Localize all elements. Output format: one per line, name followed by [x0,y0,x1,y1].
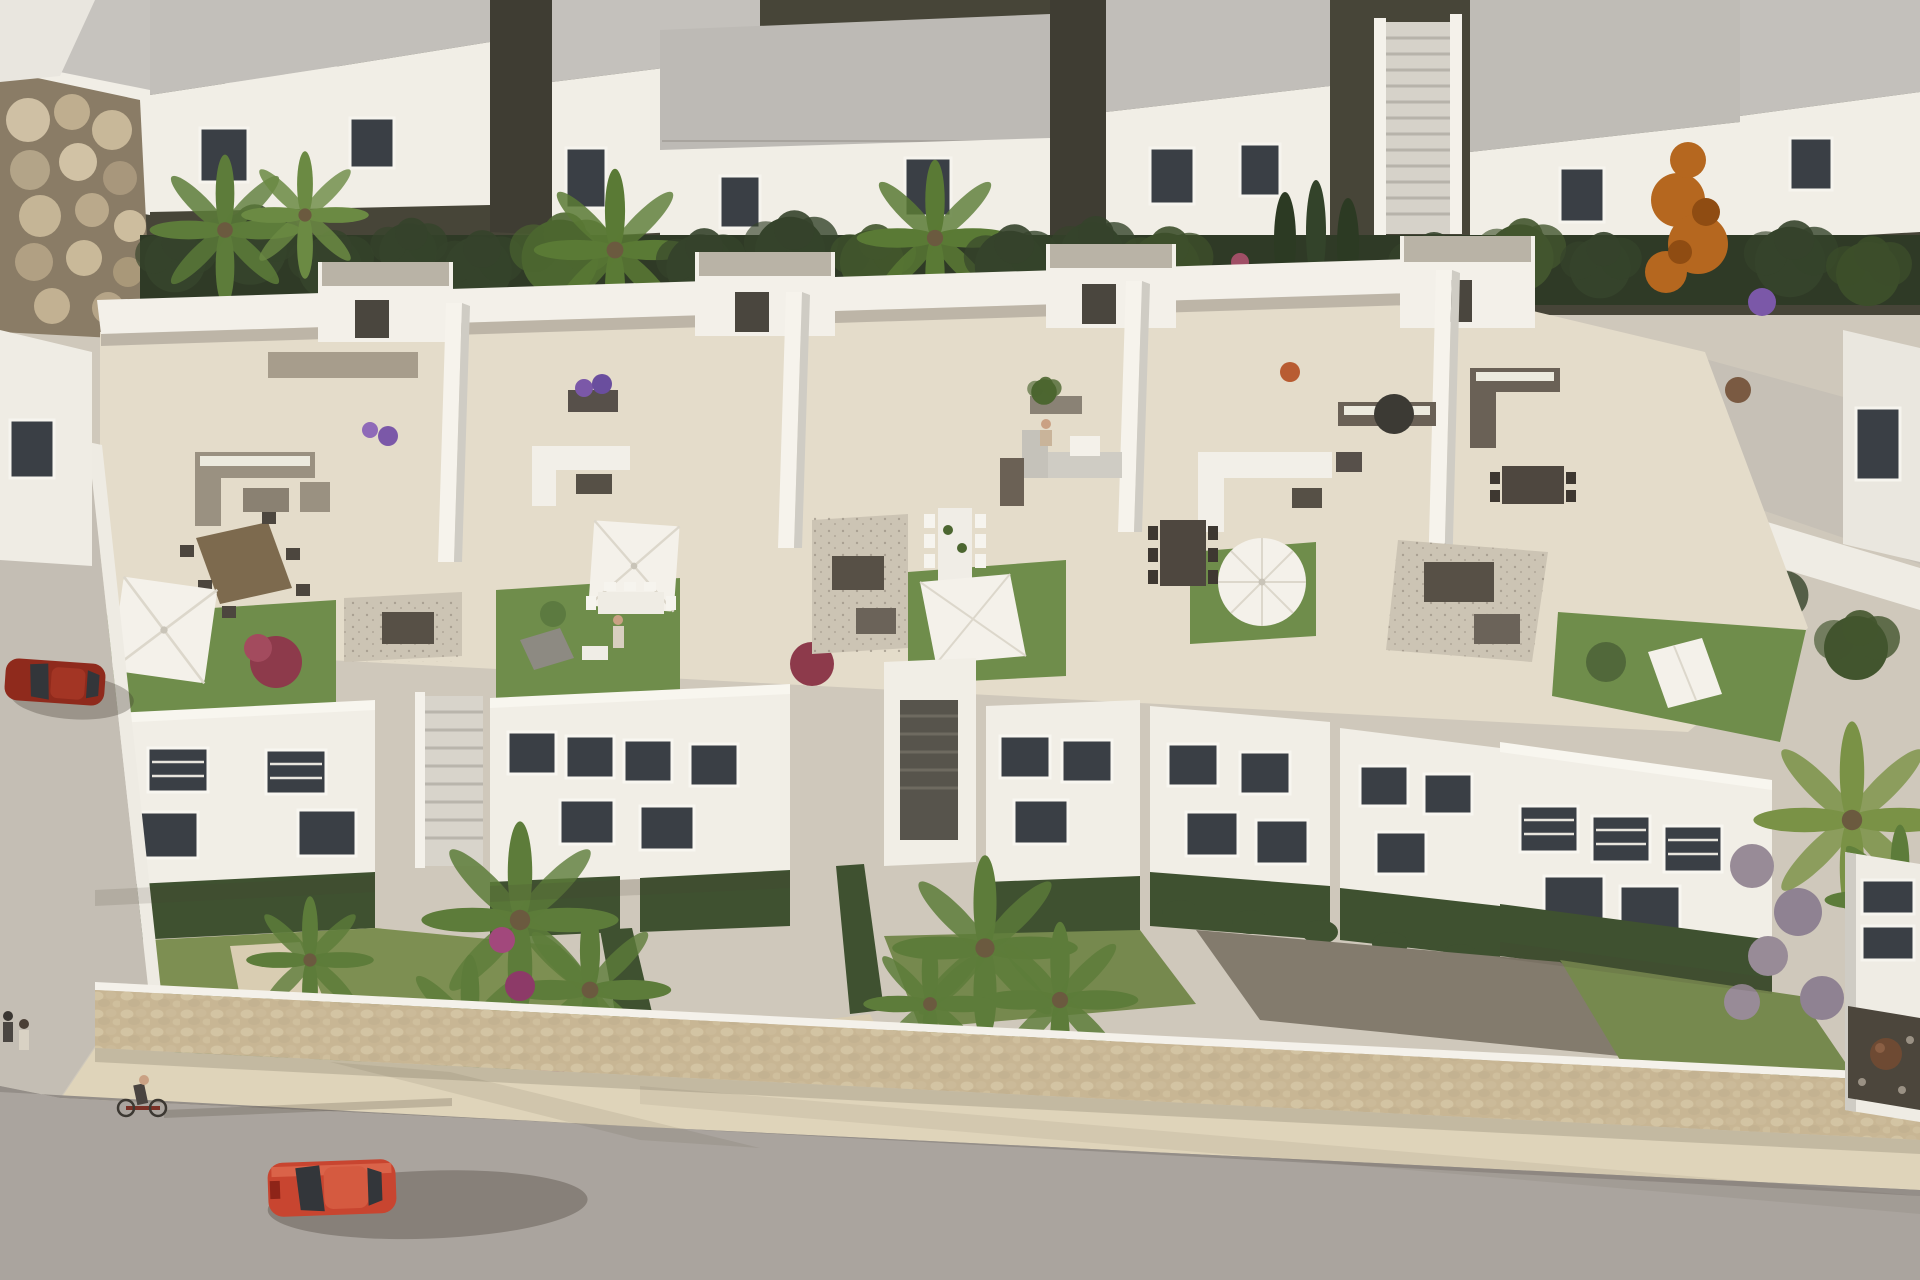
scene-svg [0,0,1920,1280]
figure-seated [1040,419,1052,446]
figure-on-lawn [613,615,624,648]
render-canvas [0,0,1920,1280]
right-corner-building [1845,852,1920,1122]
purple-shrub [1748,288,1776,316]
